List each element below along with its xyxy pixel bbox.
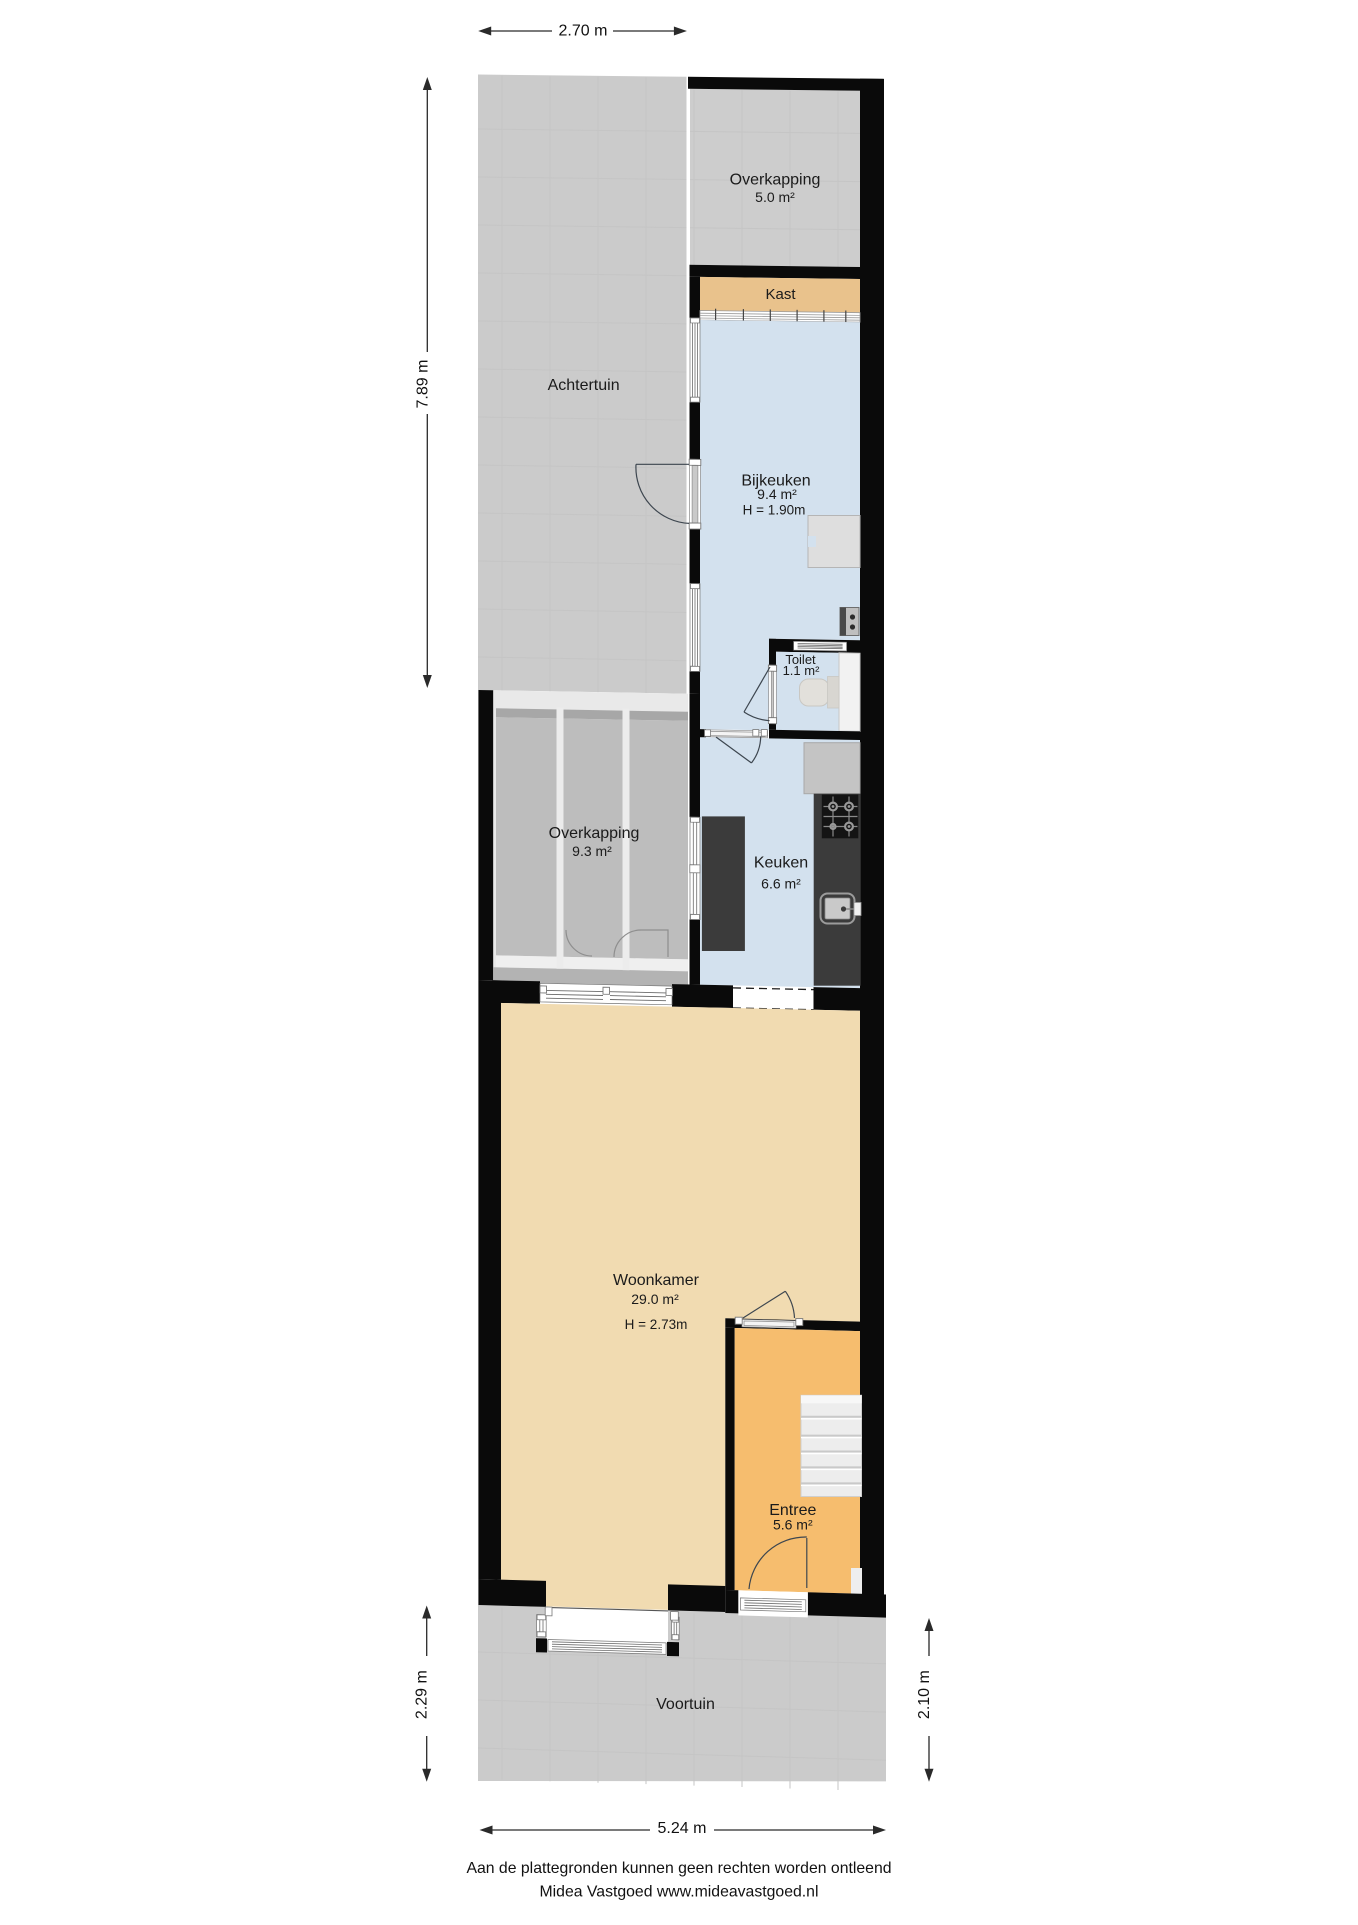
svg-text:Woonkamer: Woonkamer (613, 1272, 700, 1289)
svg-text:2.70 m: 2.70 m (559, 23, 608, 40)
svg-text:2.10 m: 2.10 m (916, 1670, 933, 1719)
svg-text:1.1 m²: 1.1 m² (783, 663, 821, 678)
svg-text:7.89 m: 7.89 m (414, 360, 431, 409)
svg-text:Achtertuin: Achtertuin (548, 377, 620, 394)
svg-text:H = 1.90m: H = 1.90m (743, 503, 806, 518)
svg-text:29.0 m²: 29.0 m² (631, 1291, 679, 1307)
svg-text:Midea Vastgoed www.mideavastgo: Midea Vastgoed www.mideavastgoed.nl (540, 1884, 819, 1901)
svg-text:Kast: Kast (765, 286, 796, 303)
svg-text:5.6 m²: 5.6 m² (773, 1517, 813, 1533)
svg-text:6.6 m²: 6.6 m² (761, 876, 801, 892)
svg-text:9.4 m²: 9.4 m² (757, 486, 797, 502)
svg-text:5.24 m: 5.24 m (658, 1820, 707, 1837)
svg-text:Aan de plattegronden kunnen ge: Aan de plattegronden kunnen geen rechten… (466, 1860, 891, 1877)
svg-text:9.3 m²: 9.3 m² (572, 843, 612, 859)
svg-text:Voortuin: Voortuin (656, 1696, 715, 1713)
svg-text:2.29 m: 2.29 m (414, 1670, 431, 1719)
svg-text:Keuken: Keuken (754, 854, 808, 871)
svg-text:H = 2.73m: H = 2.73m (625, 1317, 688, 1332)
svg-text:5.0 m²: 5.0 m² (755, 189, 795, 205)
svg-text:Overkapping: Overkapping (730, 172, 821, 189)
svg-text:Overkapping: Overkapping (549, 825, 640, 842)
